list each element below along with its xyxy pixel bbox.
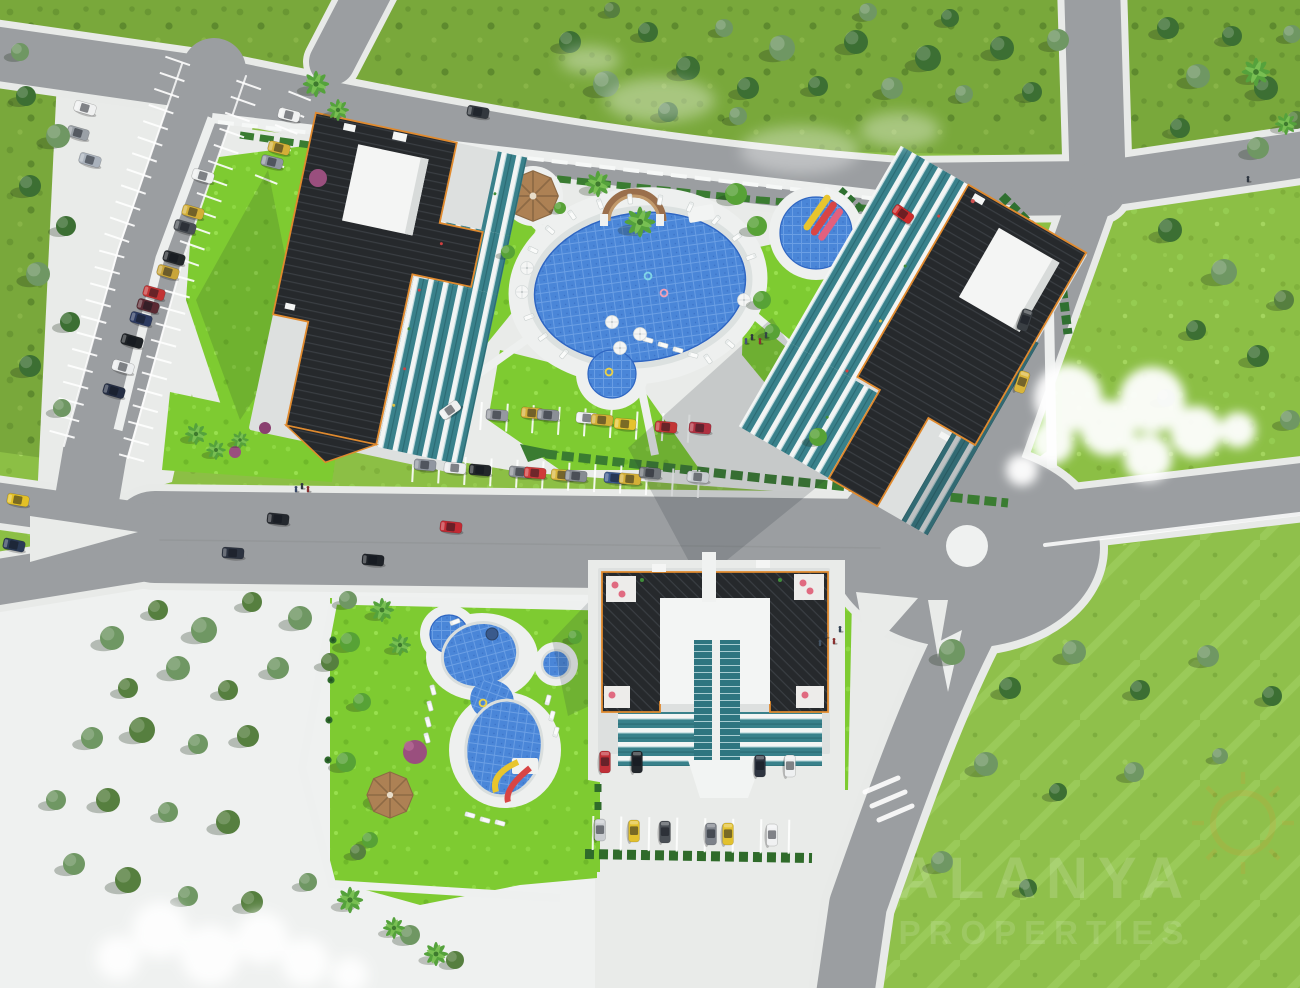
roundabout-island (946, 525, 988, 567)
aerial-render-stage: ALANYA PROPERTIES (0, 0, 1300, 988)
aerial-render: ALANYA PROPERTIES (0, 0, 1300, 988)
watermark-line2: PROPERTIES (899, 914, 1192, 951)
watermark-line1: ALANYA (897, 846, 1193, 911)
building-block-c (588, 552, 845, 800)
purple-bush (309, 169, 327, 187)
